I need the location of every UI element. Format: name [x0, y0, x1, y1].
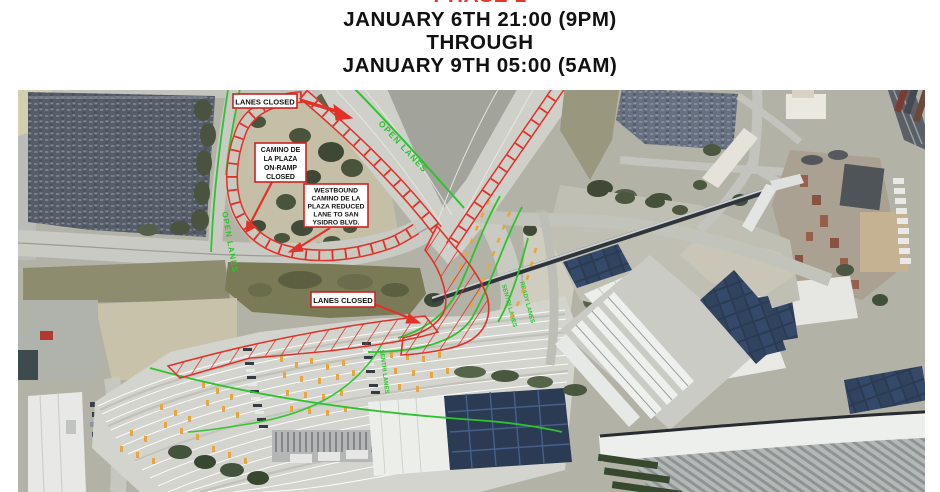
svg-text:LANES CLOSED: LANES CLOSED — [313, 296, 373, 305]
svg-text:LANES CLOSED: LANES CLOSED — [235, 98, 295, 107]
svg-text:ON-RAMP: ON-RAMP — [264, 165, 297, 172]
svg-text:WESTBOUND: WESTBOUND — [314, 188, 358, 195]
svg-text:CAMINO DE LA: CAMINO DE LA — [311, 196, 360, 203]
svg-text:LA PLAZA: LA PLAZA — [264, 156, 298, 163]
svg-text:LANE TO SAN: LANE TO SAN — [313, 212, 358, 219]
svg-text:CLOSED: CLOSED — [266, 174, 295, 181]
svg-text:YSIDRO BLVD.: YSIDRO BLVD. — [312, 220, 359, 227]
svg-text:CAMINO DE: CAMINO DE — [261, 147, 301, 154]
svg-text:PLAZA REDUCED: PLAZA REDUCED — [308, 204, 365, 211]
